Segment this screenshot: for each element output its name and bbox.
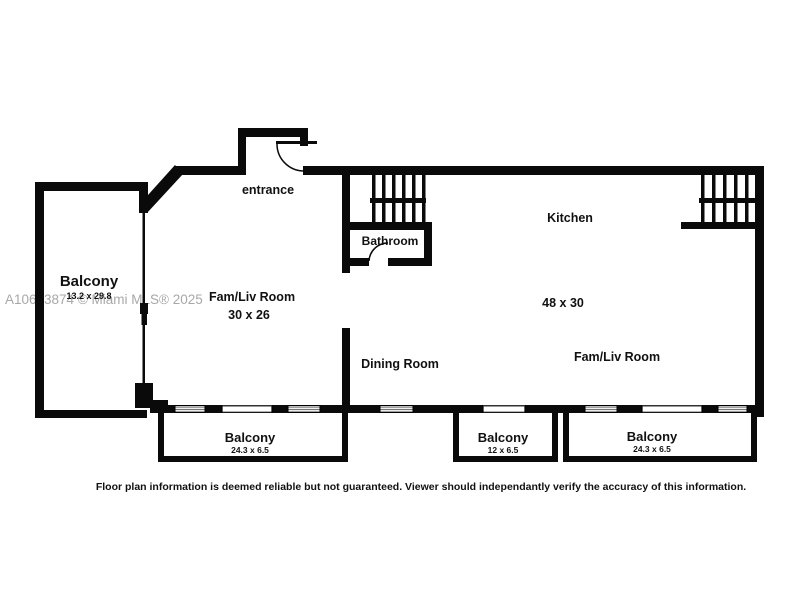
label-kitchen: Kitchen <box>547 211 593 225</box>
window-icon <box>380 406 413 413</box>
window-icon <box>585 406 617 413</box>
label-balcony-br-dims: 24.3 x 6.5 <box>633 444 671 454</box>
label-famliv-right: Fam/Liv Room <box>574 350 660 364</box>
label-bathroom: Bathroom <box>362 234 419 248</box>
label-balcony-bl: Balcony <box>225 430 276 445</box>
sliding-door-icon <box>642 406 702 413</box>
label-main-dims: 48 x 30 <box>542 296 584 310</box>
label-entrance: entrance <box>242 183 294 197</box>
floor-plan-drawing: A10653874 © Miami MLS® 2025 <box>0 0 800 600</box>
window-icon <box>175 406 205 413</box>
floor-plan-page: A10653874 © Miami MLS® 2025 <box>0 0 800 600</box>
window-icon <box>718 406 747 413</box>
label-balcony-left-dims: 13.2 x 29.8 <box>66 291 111 301</box>
label-balcony-bm: Balcony <box>478 430 529 445</box>
label-balcony-left: Balcony <box>60 273 119 290</box>
window-icon <box>288 406 320 413</box>
label-balcony-bm-dims: 12 x 6.5 <box>488 445 519 455</box>
disclaimer-text: Floor plan information is deemed reliabl… <box>96 481 746 493</box>
dining-wall <box>342 328 350 413</box>
balcony-slider-wall <box>143 210 146 385</box>
label-famliv-left-dims: 30 x 26 <box>228 308 270 322</box>
entrance-door-leaf <box>276 141 317 144</box>
label-dining: Dining Room <box>361 357 439 371</box>
label-famliv-left: Fam/Liv Room <box>209 290 295 304</box>
label-balcony-bl-dims: 24.3 x 6.5 <box>231 445 269 455</box>
sliding-door-icon <box>483 406 525 413</box>
sliding-door-icon <box>222 406 272 413</box>
label-balcony-br: Balcony <box>627 429 678 444</box>
right-wall <box>755 166 764 417</box>
stairs-wall <box>342 166 350 273</box>
